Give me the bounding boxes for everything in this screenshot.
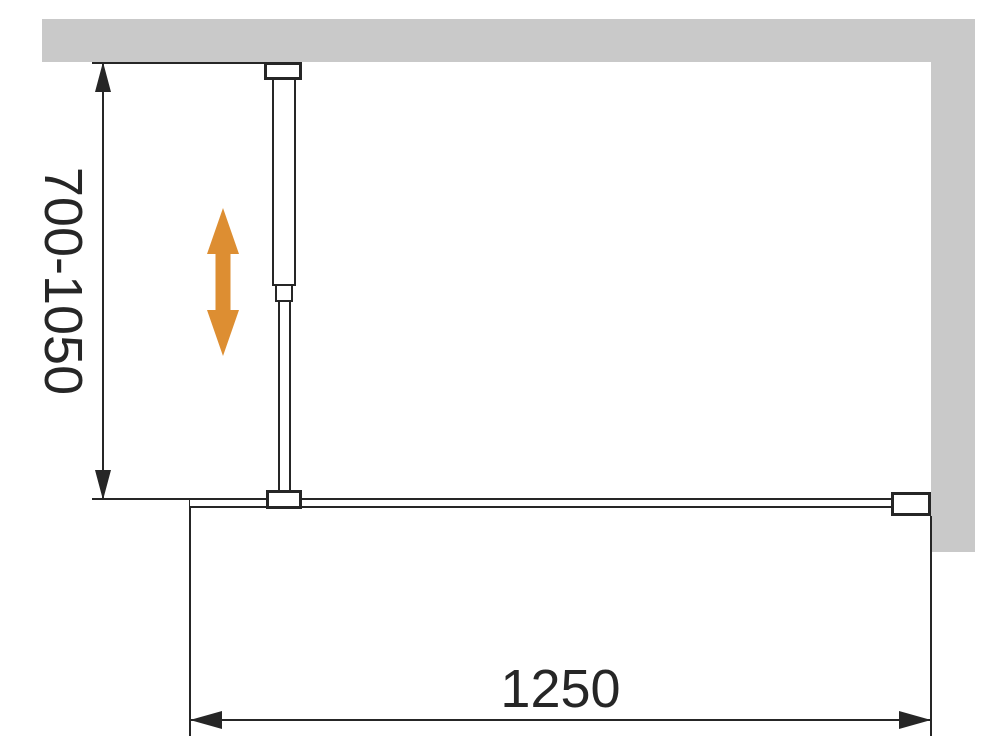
glass-clamp-bracket <box>266 490 302 509</box>
arrow-down-icon <box>95 470 111 500</box>
arrow-up-icon <box>95 62 111 92</box>
wall-bracket <box>891 492 931 516</box>
double-arrow-shape <box>207 208 239 356</box>
adjustable-height-arrow-icon <box>207 208 239 356</box>
installation-diagram: 700-1050 1250 <box>0 0 1000 749</box>
ceiling-reference-line <box>92 62 266 64</box>
width-dimension-line <box>190 719 931 721</box>
side-wall <box>931 62 975 552</box>
top-wall <box>42 19 975 62</box>
width-dimension-label: 1250 <box>190 662 931 716</box>
height-dimension-line <box>102 62 104 500</box>
ceiling-bracket <box>264 62 302 80</box>
support-bar-upper <box>272 78 296 286</box>
height-dimension-label: 700-1050 <box>30 61 90 501</box>
support-bar-lower <box>278 300 291 493</box>
